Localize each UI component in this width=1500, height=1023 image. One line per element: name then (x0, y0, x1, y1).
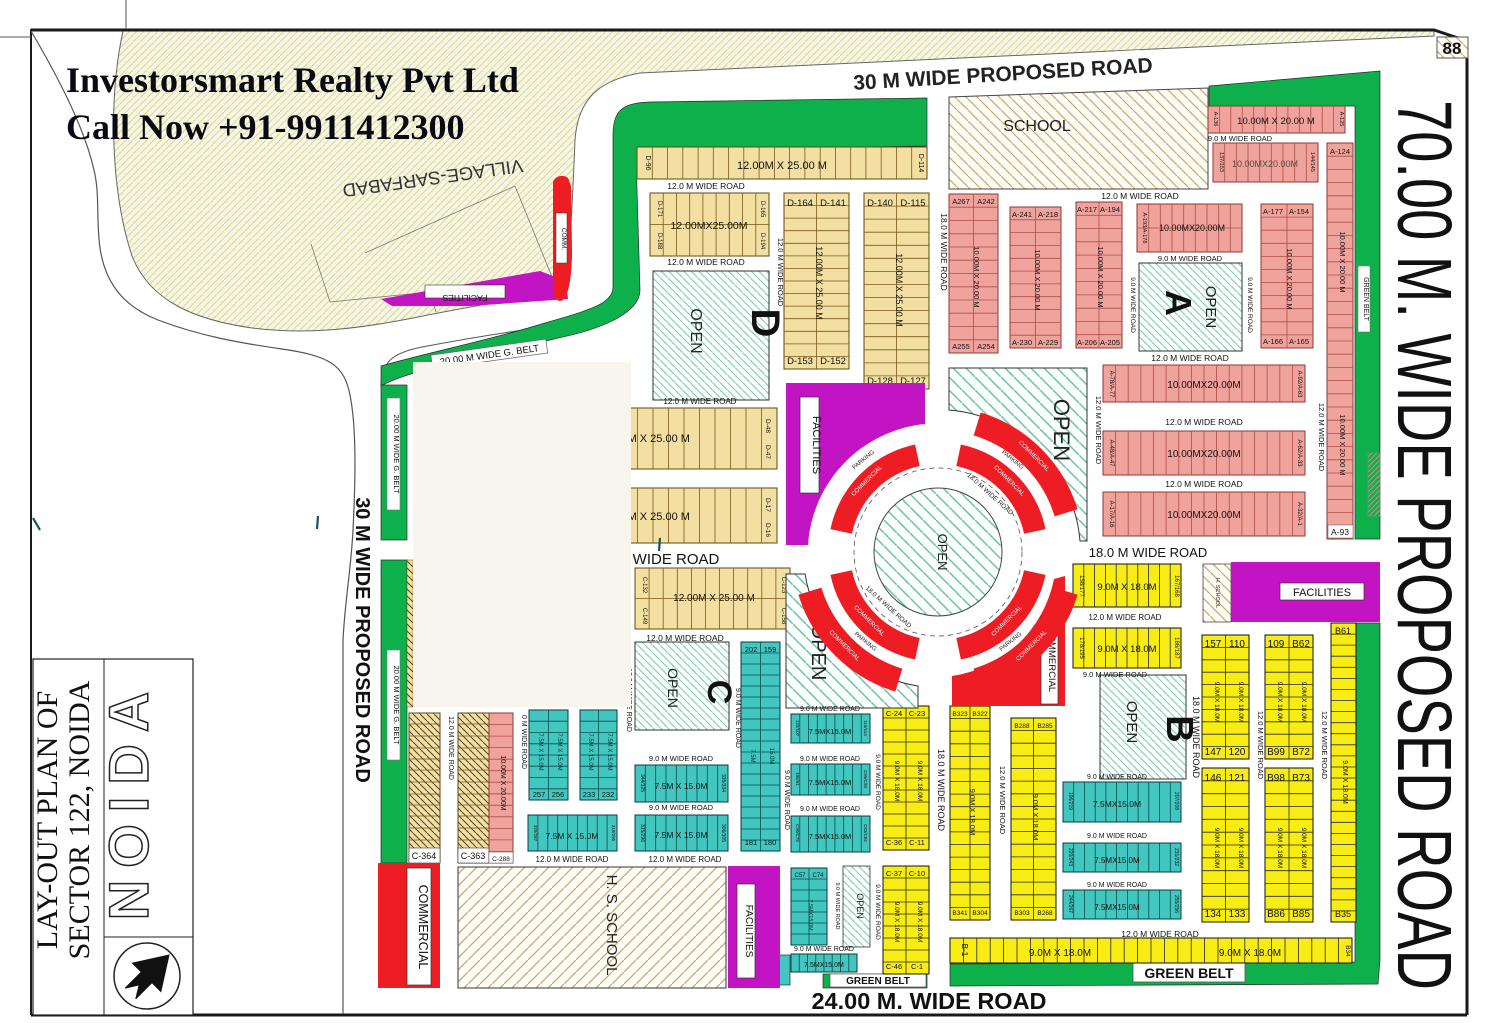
svg-text:OPEN: OPEN (1123, 701, 1140, 744)
svg-text:232: 232 (602, 790, 615, 799)
svg-text:315/296: 315/296 (639, 824, 645, 842)
svg-text:233: 233 (583, 790, 596, 799)
svg-text:B85: B85 (1292, 909, 1310, 920)
svg-text:FACILITIES: FACILITIES (1293, 587, 1351, 599)
svg-text:9.0 M WIDE ROAD: 9.0 M WIDE ROAD (1087, 882, 1147, 889)
svg-text:12.00M X 25.00 M: 12.00M X 25.00 M (737, 160, 827, 172)
svg-text:9.0M X 18.0M: 9.0M X 18.0M (916, 902, 923, 942)
svg-text:GREEN BELT: GREEN BELT (1362, 277, 1369, 322)
svg-text:12.0 M WIDE ROAD: 12.0 M WIDE ROAD (998, 766, 1007, 835)
svg-text:COMM.: COMM. (560, 228, 567, 251)
svg-text:C-158: C-158 (780, 608, 786, 625)
svg-text:D-114: D-114 (917, 154, 924, 173)
svg-text:9.0 M WIDE ROAD: 9.0 M WIDE ROAD (800, 806, 860, 813)
svg-text:9.0 M WIDE ROAD: 9.0 M WIDE ROAD (800, 706, 860, 713)
svg-text:A-193/A-178: A-193/A-178 (1141, 213, 1147, 244)
svg-text:A-124: A-124 (1330, 147, 1350, 156)
svg-text:12.0 M WIDE ROAD: 12.0 M WIDE ROAD (1101, 191, 1178, 201)
svg-text:C90/C75: C90/C75 (795, 824, 800, 842)
svg-text:D-96: D-96 (644, 155, 651, 170)
svg-text:B62: B62 (1292, 639, 1310, 650)
svg-text:12.0 M WIDE ROAD: 12.0 M WIDE ROAD (667, 181, 744, 191)
svg-text:120: 120 (1229, 747, 1246, 758)
svg-text:7.5M X 15.0M: 7.5M X 15.0M (606, 733, 612, 770)
svg-text:D-194: D-194 (759, 233, 765, 250)
svg-text:24.00 M. WIDE ROAD: 24.00 M. WIDE ROAD (811, 988, 1046, 1014)
svg-text:OPEN: OPEN (855, 893, 865, 919)
svg-text:12.0 M WIDE ROAD: 12.0 M WIDE ROAD (1094, 396, 1103, 465)
svg-text:B73: B73 (1292, 773, 1310, 784)
svg-text:256: 256 (552, 790, 565, 799)
svg-text:12.0 M WIDE ROAD: 12.0 M WIDE ROAD (1089, 613, 1162, 622)
svg-text:12.0 M WIDE ROAD: 12.0 M WIDE ROAD (1165, 417, 1242, 427)
svg-text:9.0M X 18.0M: 9.0M X 18.0M (1219, 948, 1281, 959)
svg-text:D-115: D-115 (900, 198, 925, 209)
svg-text:12.0 M WIDE ROAD: 12.0 M WIDE ROAD (1151, 353, 1228, 363)
svg-text:9.0 M WIDE ROAD: 9.0 M WIDE ROAD (1083, 670, 1148, 679)
svg-text:167/168: 167/168 (1173, 575, 1179, 597)
svg-text:159: 159 (764, 645, 777, 654)
svg-text:180: 180 (764, 838, 777, 847)
svg-text:C-46: C-46 (886, 962, 902, 971)
svg-text:A-136: A-136 (1212, 112, 1218, 127)
svg-text:12.0 M WIDE ROAD: 12.0 M WIDE ROAD (1256, 711, 1265, 780)
svg-text:186/187: 186/187 (1173, 637, 1179, 659)
svg-text:207/208: 207/208 (1173, 792, 1179, 810)
svg-text:A-241: A-241 (1012, 210, 1032, 219)
svg-text:9.0M X 18.0M: 9.0M X 18.0M (893, 902, 900, 942)
svg-text:C83/C82: C83/C82 (863, 824, 868, 842)
svg-text:OPEN: OPEN (665, 668, 681, 708)
svg-text:196/219: 196/219 (1067, 792, 1073, 810)
svg-text:9.0M X 18.0M: 9.0M X 18.0M (1341, 760, 1348, 804)
svg-text:10.00MX20.00M: 10.00MX20.00M (1167, 510, 1240, 521)
svg-text:C74: C74 (812, 873, 824, 879)
svg-text:OPEN: OPEN (1049, 399, 1074, 461)
svg-text:7.5MX15.0M: 7.5MX15.0M (809, 727, 852, 736)
svg-text:B98: B98 (1267, 773, 1285, 784)
svg-text:B72: B72 (1292, 747, 1310, 758)
svg-text:134: 134 (1205, 909, 1222, 920)
svg-text:SCHOOL: SCHOOL (1003, 118, 1071, 135)
svg-text:A-206: A-206 (1077, 338, 1097, 347)
svg-text:B303: B303 (1014, 910, 1030, 917)
svg-text:18.0 M WIDE ROAD: 18.0 M WIDE ROAD (936, 749, 946, 832)
svg-text:9.0M X 18.0M: 9.0M X 18.0M (968, 789, 977, 836)
svg-text:9.0M X 18.0M: 9.0M X 18.0M (1237, 828, 1244, 868)
svg-text:328/287: 328/287 (533, 825, 538, 842)
svg-text:137/153: 137/153 (1218, 152, 1224, 172)
svg-text:10.00M X 20.00 M: 10.00M X 20.00 M (1237, 116, 1315, 127)
svg-text:B285: B285 (1037, 723, 1053, 730)
svg-text:9.0 M WIDE ROAD: 9.0 M WIDE ROAD (1158, 254, 1223, 263)
svg-text:A-17/A-16: A-17/A-16 (1108, 500, 1114, 528)
svg-text:7.5MX15.0M: 7.5MX15.0M (1094, 903, 1140, 912)
svg-text:D: D (743, 309, 787, 338)
svg-text:10.00MX20.00M: 10.00MX20.00M (1159, 223, 1225, 233)
svg-text:B35: B35 (1335, 909, 1351, 919)
svg-text:A-62/A-33: A-62/A-33 (1296, 439, 1302, 467)
svg-text:C-364: C-364 (412, 851, 437, 861)
svg-text:H. SCHOOL: H. SCHOOL (1214, 578, 1220, 608)
svg-text:7.5MX15.0M: 7.5MX15.0M (809, 778, 852, 787)
svg-text:A254: A254 (977, 342, 995, 351)
svg-text:12.00M X 25.00 M: 12.00M X 25.00 M (673, 593, 755, 604)
svg-text:A-78/A-77: A-78/A-77 (1108, 370, 1114, 398)
svg-text:9.0M X 18.0M: 9.0M X 18.0M (1029, 948, 1091, 959)
svg-text:COMMERCIAL: COMMERCIAL (416, 885, 430, 970)
svg-text:C-11: C-11 (909, 838, 925, 847)
svg-text:NOIDA: NOIDA (97, 680, 160, 920)
svg-text:9.0M X 18.0M: 9.0M X 18.0M (1213, 828, 1220, 868)
svg-text:D-153: D-153 (787, 356, 813, 367)
svg-text:C-10: C-10 (909, 869, 925, 878)
svg-text:OPEN: OPEN (935, 534, 950, 571)
svg-text:OPEN: OPEN (1202, 286, 1219, 329)
svg-text:C-132: C-132 (641, 577, 647, 594)
svg-text:7.5M X 15.0M: 7.5M X 15.0M (655, 781, 708, 791)
svg-text:9.0 M WIDE ROAD: 9.0 M WIDE ROAD (1208, 134, 1273, 143)
svg-text:7.5M X 15.0M: 7.5M X 15.0M (556, 733, 562, 770)
svg-text:9.0M X 18.0M: 9.0M X 18.0M (1097, 644, 1156, 655)
svg-text:121: 121 (1229, 773, 1246, 784)
svg-text:D-164: D-164 (787, 198, 813, 209)
svg-text:9.0 M WIDE ROAD: 9.0 M WIDE ROAD (783, 770, 790, 830)
svg-text:18.0 M WIDE ROAD: 18.0 M WIDE ROAD (1191, 696, 1201, 779)
svg-text:A255: A255 (952, 342, 970, 351)
svg-text:12.0 M WIDE ROAD: 12.0 M WIDE ROAD (1121, 929, 1198, 939)
svg-text:FACILITIES: FACILITIES (810, 416, 822, 474)
svg-text:12.0 M WIDE ROAD: 12.0 M WIDE ROAD (1317, 403, 1326, 472)
svg-text:18.0 M WIDE ROAD: 18.0 M WIDE ROAD (1089, 545, 1207, 560)
svg-text:GREEN BELT: GREEN BELT (846, 976, 910, 987)
svg-text:9.0M X 18.0M: 9.0M X 18.0M (916, 761, 923, 801)
svg-text:115/114: 115/114 (863, 720, 868, 736)
svg-text:C-37: C-37 (886, 869, 902, 878)
svg-text:9.0M X 18.0M: 9.0M X 18.0M (1300, 682, 1307, 722)
svg-text:D-165: D-165 (759, 201, 765, 218)
svg-text:A-166: A-166 (1263, 337, 1283, 346)
svg-text:10.00MX20.00M: 10.00MX20.00M (1167, 449, 1240, 460)
svg-text:A-92/A-63: A-92/A-63 (1296, 370, 1302, 398)
svg-text:D-140: D-140 (867, 198, 893, 209)
svg-text:20.00 M WIDE G. BELT: 20.00 M WIDE G. BELT (392, 414, 401, 493)
svg-text:D-141: D-141 (820, 198, 846, 209)
svg-text:9.0M X 18.0M: 9.0M X 18.0M (1276, 682, 1283, 722)
svg-text:GREEN BELT: GREEN BELT (1144, 965, 1234, 981)
svg-text:7.5M X 15.0M: 7.5M X 15.0M (546, 831, 599, 841)
svg-text:A-32/A-1: A-32/A-1 (1296, 502, 1302, 526)
svg-text:344/325: 344/325 (639, 774, 645, 792)
svg-text:C57: C57 (794, 873, 806, 879)
svg-text:B86: B86 (1267, 909, 1285, 920)
svg-text:10.00M X 20.00M: 10.00M X 20.00M (499, 755, 506, 810)
svg-text:231/232: 231/232 (1173, 848, 1179, 866)
svg-text:C-1: C-1 (911, 962, 923, 971)
svg-text:147: 147 (1205, 747, 1222, 758)
svg-text:A-177: A-177 (1263, 207, 1283, 216)
svg-text:12.0 M WIDE ROAD: 12.0 M WIDE ROAD (776, 238, 785, 307)
svg-text:10.00M X 20.00 M: 10.00M X 20.00 M (1285, 248, 1294, 309)
svg-text:257: 257 (533, 790, 546, 799)
svg-text:12.0 M WIDE ROAD: 12.0 M WIDE ROAD (667, 257, 744, 267)
svg-text:9.0 M WIDE ROAD: 9.0 M WIDE ROAD (1129, 277, 1136, 333)
svg-text:WIDE ROAD: WIDE ROAD (633, 551, 720, 568)
svg-text:D-17: D-17 (764, 498, 771, 512)
svg-text:122/107: 122/107 (795, 720, 800, 737)
svg-text:B341: B341 (952, 910, 968, 917)
svg-text:A-93: A-93 (1331, 527, 1349, 537)
svg-text:12.0 M WIDE ROAD: 12.0 M WIDE ROAD (536, 855, 609, 864)
svg-text:70.00 M. WIDE PROPOSED ROAD: 70.00 M. WIDE PROPOSED ROAD (1381, 100, 1467, 990)
svg-text:B-1: B-1 (960, 944, 969, 957)
svg-text:Investorsmart Realty Pvt Ltd: Investorsmart Realty Pvt Ltd (66, 60, 519, 100)
svg-text:9.0 M WIDE ROAD: 9.0 M WIDE ROAD (1087, 833, 1147, 840)
svg-text:LAY-OUT PLAN OF: LAY-OUT PLAN OF (31, 691, 64, 949)
svg-text:181: 181 (745, 838, 758, 847)
svg-text:12.0 M WIDE ROAD: 12.0 M WIDE ROAD (447, 716, 454, 780)
svg-text:D-152: D-152 (820, 356, 846, 367)
svg-text:9.0 M WIDE ROAD: 9.0 M WIDE ROAD (649, 754, 714, 763)
svg-text:9.0 M WIDE ROAD: 9.0 M WIDE ROAD (834, 882, 840, 929)
svg-text:0 M WIDE ROAD: 0 M WIDE ROAD (520, 715, 527, 769)
svg-text:9.0M X 18.0M: 9.0M X 18.0M (1031, 794, 1040, 841)
svg-text:OPEN: OPEN (687, 308, 704, 353)
svg-text:9.0M X 18.0M: 9.0M X 18.0M (893, 761, 900, 801)
svg-text:255/256: 255/256 (1173, 895, 1179, 913)
svg-text:C: C (700, 680, 738, 705)
svg-text:157: 157 (1205, 639, 1222, 650)
svg-text:9.0M X 18.0M: 9.0M X 18.0M (1213, 682, 1220, 722)
svg-text:12.0 M WIDE ROAD: 12.0 M WIDE ROAD (646, 633, 723, 643)
svg-text:7.5MX15.0M: 7.5MX15.0M (807, 899, 813, 931)
svg-text:B304: B304 (972, 910, 988, 917)
svg-text:318/295: 318/295 (611, 825, 616, 842)
svg-text:C-24: C-24 (886, 709, 902, 718)
svg-text:C99/C98: C99/C98 (863, 770, 868, 788)
svg-text:144/145: 144/145 (1309, 152, 1315, 172)
svg-text:7.5M: 7.5M (749, 749, 755, 762)
svg-text:9.0 M WIDE ROAD: 9.0 M WIDE ROAD (1087, 774, 1147, 781)
svg-text:9.0 M WIDE ROAD: 9.0 M WIDE ROAD (874, 884, 881, 940)
svg-text:A-125: A-125 (1338, 112, 1344, 127)
svg-text:B323: B323 (952, 711, 968, 718)
svg-text:12.00M X 25.00 M: 12.00M X 25.00 M (894, 253, 904, 327)
svg-text:10.00M X 20.00 M: 10.00M X 20.00 M (1338, 231, 1347, 292)
svg-text:H. S. SCHOOL: H. S. SCHOOL (603, 875, 620, 976)
svg-text:202: 202 (745, 645, 758, 654)
svg-text:9.0 M WIDE ROAD: 9.0 M WIDE ROAD (874, 754, 881, 810)
svg-text:B322: B322 (972, 711, 988, 718)
svg-text:12.00M X 25.00 M: 12.00M X 25.00 M (814, 246, 824, 320)
svg-text:244/267: 244/267 (1067, 895, 1073, 913)
svg-text:A-165: A-165 (1289, 337, 1309, 346)
svg-text:106/91: 106/91 (795, 772, 800, 786)
svg-text:110: 110 (1229, 639, 1245, 650)
svg-text:B288: B288 (1014, 723, 1030, 730)
svg-text:9.0M X 18.0M: 9.0M X 18.0M (1097, 582, 1156, 593)
svg-text:D-16: D-16 (764, 523, 771, 537)
svg-text:30 M WIDE PROPOSED ROAD: 30 M WIDE PROPOSED ROAD (351, 497, 373, 783)
svg-text:9.0 M WIDE ROAD: 9.0 M WIDE ROAD (794, 946, 854, 953)
svg-text:133: 133 (1229, 909, 1246, 920)
svg-text:9.0 M WIDE ROAD: 9.0 M WIDE ROAD (734, 688, 741, 748)
svg-text:88: 88 (1443, 39, 1462, 58)
svg-text:220/243: 220/243 (1067, 848, 1073, 866)
svg-text:A: A (1158, 290, 1199, 316)
svg-text:10.00M X 20.00 M: 10.00M X 20.00 M (972, 246, 981, 307)
svg-text:A-229: A-229 (1038, 338, 1058, 347)
svg-text:7.5MX15.0M: 7.5MX15.0M (1094, 856, 1140, 865)
svg-text:146: 146 (1205, 773, 1222, 784)
svg-text:B61: B61 (1335, 626, 1351, 636)
svg-text:A-194: A-194 (1100, 205, 1120, 214)
svg-text:A-48/A-47: A-48/A-47 (1108, 439, 1114, 467)
svg-text:C-36: C-36 (886, 838, 902, 847)
svg-text:9.0 M WIDE ROAD: 9.0 M WIDE ROAD (1246, 277, 1253, 333)
svg-text:178/195: 178/195 (1078, 637, 1084, 659)
svg-text:10.00M X 20.00 M: 10.00M X 20.00 M (1096, 246, 1105, 307)
svg-text:7.5M X 15.0M: 7.5M X 15.0M (587, 733, 593, 770)
svg-text:12.0 M WIDE ROAD: 12.0 M WIDE ROAD (664, 397, 737, 406)
svg-text:20.00 M WIDE G. BELT: 20.00 M WIDE G. BELT (392, 665, 401, 744)
svg-text:10.00M X 20.00 M: 10.00M X 20.00 M (1338, 414, 1347, 475)
svg-text:12.0 M WIDE ROAD: 12.0 M WIDE ROAD (1320, 711, 1329, 780)
svg-text:7.5MX15.0M: 7.5MX15.0M (1093, 799, 1141, 809)
svg-text:FACILITIES: FACILITIES (442, 293, 487, 303)
svg-text:A-217: A-217 (1077, 205, 1097, 214)
svg-text:158/177: 158/177 (1078, 575, 1084, 597)
svg-text:7.5M X 15.0M: 7.5M X 15.0M (655, 830, 708, 840)
svg-text:D-48: D-48 (764, 419, 771, 433)
svg-text:9.0 M WIDE ROAD: 9.0 M WIDE ROAD (649, 803, 714, 812)
svg-text:7.5M X 15.0M: 7.5M X 15.0M (537, 733, 543, 770)
svg-text:109: 109 (1268, 639, 1285, 650)
svg-text:D-188: D-188 (656, 233, 662, 250)
svg-text:306/305: 306/305 (720, 824, 726, 842)
svg-text:9.0M X 18.0M: 9.0M X 18.0M (1300, 828, 1307, 868)
svg-text:12.0 M WIDE ROAD: 12.0 M WIDE ROAD (649, 855, 722, 864)
svg-text:C-123: C-123 (780, 577, 786, 594)
svg-text:FACILITIES: FACILITIES (743, 905, 754, 958)
svg-text:A242: A242 (977, 197, 995, 206)
svg-text:15.0M: 15.0M (768, 748, 774, 765)
svg-text:C-149: C-149 (641, 608, 647, 625)
svg-text:SECTOR 122, NOIDA: SECTOR 122, NOIDA (63, 680, 96, 959)
svg-text:A-205: A-205 (1100, 338, 1120, 347)
svg-text:9.0M X 18.0M: 9.0M X 18.0M (1276, 828, 1283, 868)
svg-text:12.00MX25.00M: 12.00MX25.00M (670, 220, 747, 232)
svg-text:7.5MX15.0M: 7.5MX15.0M (804, 962, 844, 969)
svg-text:D-47: D-47 (764, 445, 771, 459)
svg-text:B34: B34 (1344, 945, 1351, 957)
svg-text:A-230: A-230 (1012, 338, 1032, 347)
svg-text:Call Now +91-9911412300: Call Now +91-9911412300 (66, 107, 465, 147)
svg-text:9.0M X 18.0M: 9.0M X 18.0M (1237, 682, 1244, 722)
svg-text:B99: B99 (1267, 747, 1285, 758)
svg-text:A267: A267 (952, 197, 970, 206)
svg-text:C-23: C-23 (909, 709, 925, 718)
svg-text:C-363: C-363 (461, 851, 486, 861)
svg-text:A-154: A-154 (1289, 207, 1309, 216)
svg-text:D-171: D-171 (656, 201, 662, 218)
svg-text:12.0 M WIDE ROAD: 12.0 M WIDE ROAD (1165, 479, 1242, 489)
svg-text:335/334: 335/334 (720, 774, 726, 792)
svg-text:10.00M X 20.00 M: 10.00M X 20.00 M (1033, 249, 1042, 310)
svg-text:10.00MX20.00M: 10.00MX20.00M (1167, 380, 1240, 391)
svg-text:A-218: A-218 (1038, 210, 1058, 219)
svg-text:7.5MX15.0M: 7.5MX15.0M (809, 832, 852, 841)
svg-text:C-288: C-288 (492, 856, 510, 863)
svg-text:9.0 M WIDE ROAD: 9.0 M WIDE ROAD (800, 756, 860, 763)
svg-text:10.00MX20.00M: 10.00MX20.00M (1232, 159, 1298, 169)
svg-text:B268: B268 (1037, 910, 1053, 917)
svg-text:18.0 M WIDE ROAD: 18.0 M WIDE ROAD (939, 213, 949, 290)
